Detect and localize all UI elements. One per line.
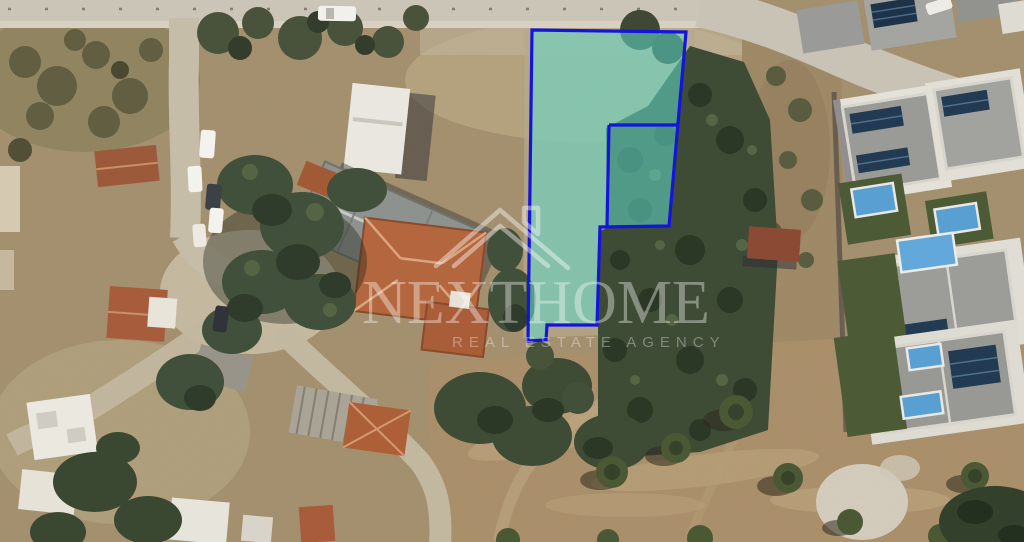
- bottom-left-white-house: [26, 394, 97, 460]
- road-left-vertical: [184, 18, 186, 238]
- left-red-house: [94, 145, 159, 187]
- car: [208, 207, 224, 233]
- villa-unit: [925, 68, 1024, 182]
- car: [318, 6, 356, 22]
- swimming-pool: [901, 391, 944, 418]
- swimming-pool: [907, 344, 944, 371]
- satellite-map: NEXTHOME REAL ESTATE AGENCY: [0, 0, 1024, 542]
- swimming-pool: [897, 233, 957, 272]
- rust-shed: [742, 226, 801, 270]
- swimming-pool: [851, 183, 897, 217]
- car: [192, 224, 207, 248]
- villa-garden: [838, 173, 911, 244]
- parcel-subdivision-line: [607, 125, 609, 226]
- car: [187, 166, 202, 193]
- swimming-pool: [934, 203, 980, 235]
- white-building: [343, 83, 436, 181]
- red-tile-house-bottom: [343, 402, 411, 456]
- wall-fragment-left: [0, 166, 20, 232]
- satellite-scene: [0, 0, 1024, 542]
- car: [205, 183, 222, 210]
- car: [199, 130, 216, 159]
